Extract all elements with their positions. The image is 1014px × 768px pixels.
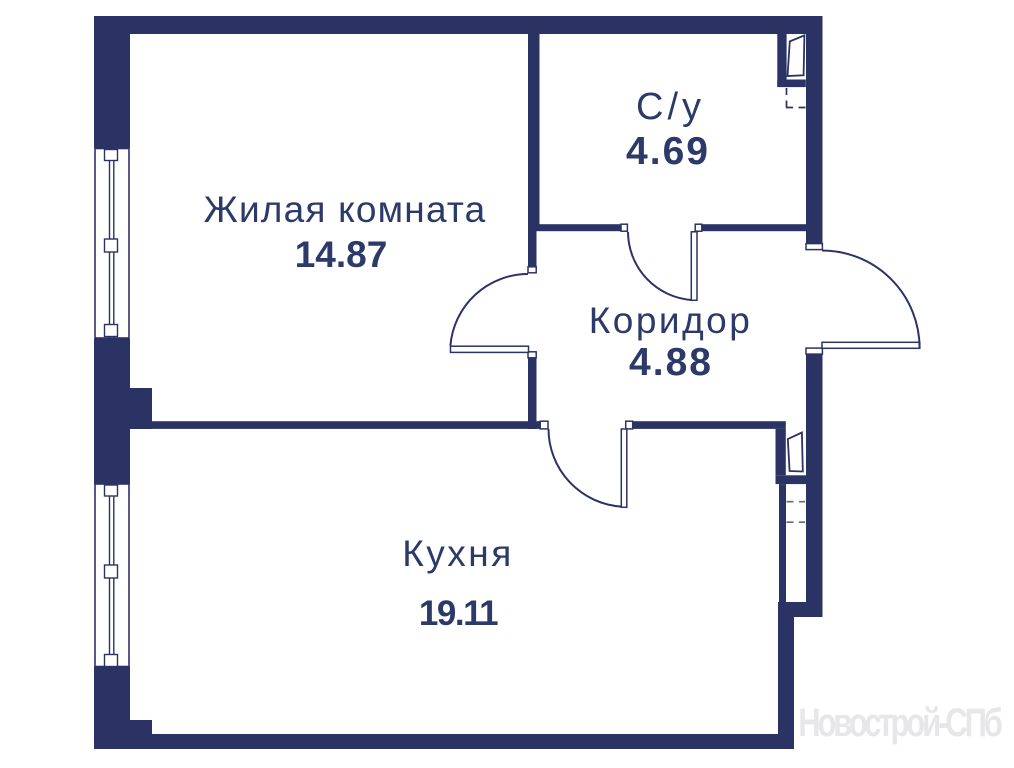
svg-text:19.11: 19.11 — [419, 594, 498, 633]
svg-text:С/у: С/у — [636, 86, 705, 128]
svg-text:Коридор: Коридор — [589, 300, 753, 341]
svg-text:Жилая комната: Жилая комната — [204, 189, 487, 230]
svg-text:Новострой-СПб: Новострой-СПб — [798, 700, 1002, 745]
svg-text:14.87: 14.87 — [295, 234, 388, 275]
svg-text:4.88: 4.88 — [629, 341, 713, 384]
svg-text:4.69: 4.69 — [626, 130, 710, 173]
svg-text:Кухня: Кухня — [402, 533, 514, 574]
